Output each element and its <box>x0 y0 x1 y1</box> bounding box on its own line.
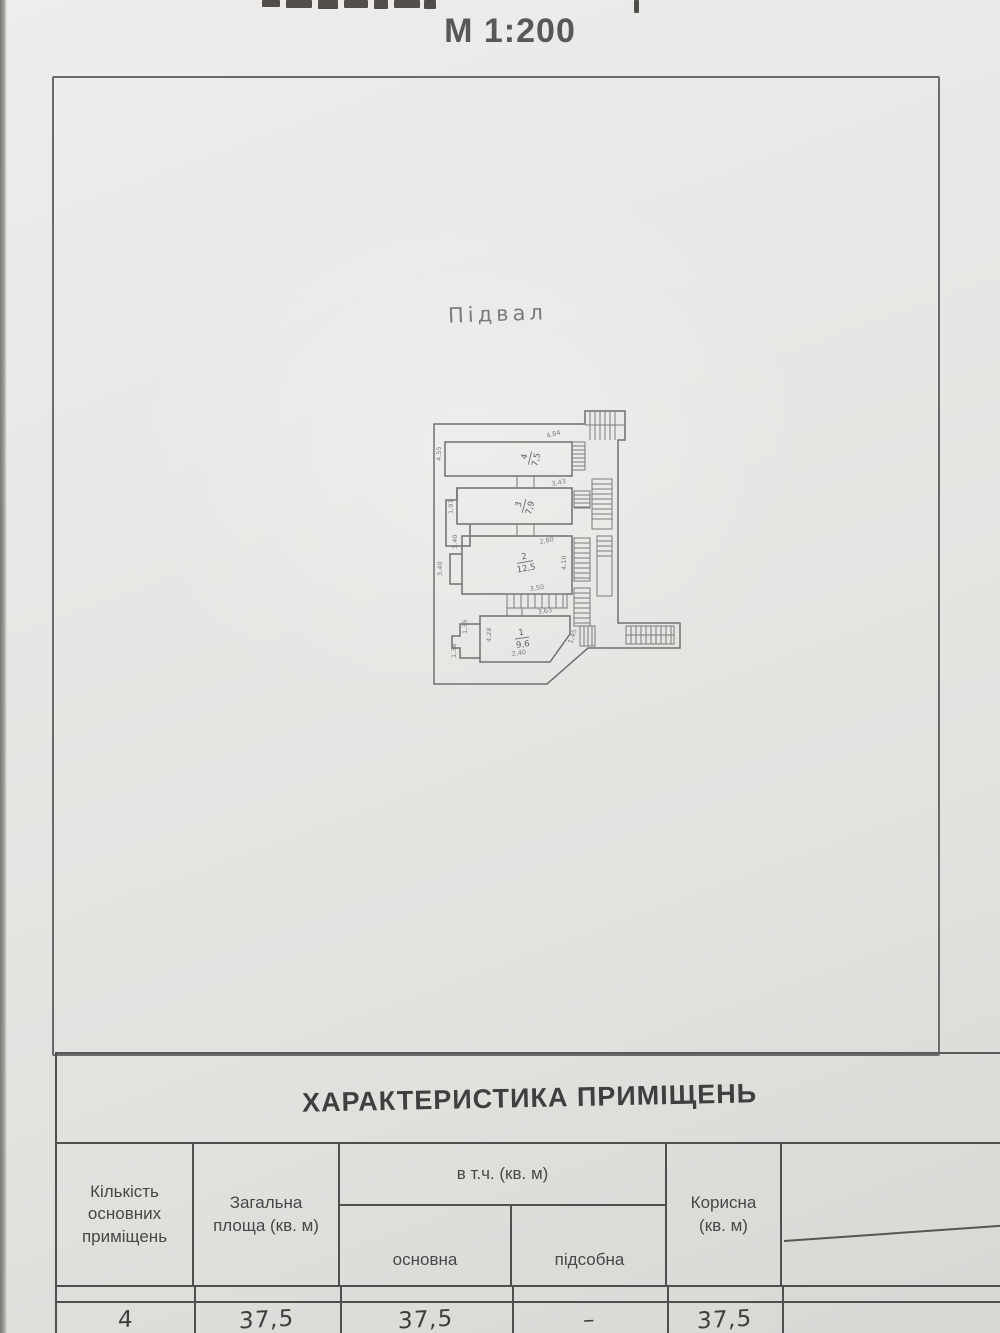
plan-dim: 4,84 <box>545 428 561 439</box>
plan-stair-run-3 <box>574 538 590 581</box>
drawing-scale-label: М 1:200 <box>370 12 650 51</box>
grid-line <box>782 1287 784 1301</box>
plan-dim: 1,40 <box>451 535 459 549</box>
plan-dim: 3,63 <box>537 606 552 616</box>
table-title-row: ХАРАКТЕРИСТИКА ПРИМІЩЕНЬ <box>57 1052 1000 1144</box>
cropped-title-fragment <box>394 0 420 8</box>
header-col-empty <box>782 1144 1000 1285</box>
header-col-total-area: Загальна площа (кв. м) <box>194 1144 340 1285</box>
cropped-title-fragment <box>262 0 280 7</box>
plan-dim: 1,45 <box>566 628 578 644</box>
header-col-count: Кількість основних приміщень <box>57 1144 194 1285</box>
plan-dim: 3,50 <box>529 583 544 593</box>
plan-dim: 1,97 <box>447 500 455 514</box>
plan-stair-run-3-steps <box>574 543 590 578</box>
svg-text:4: 4 <box>520 453 531 461</box>
plan-dim: 3,43 <box>551 477 567 488</box>
plan-dim: 4,55 <box>435 447 443 461</box>
value-total-area: 37,5 <box>239 1305 295 1333</box>
value-room-count: 4 <box>117 1306 133 1333</box>
plan-stair-run-4 <box>574 588 590 626</box>
grid-line <box>667 1287 669 1301</box>
plan-dim: 2,80 <box>539 535 555 546</box>
plan-stair-run-1-steps <box>572 446 585 466</box>
plan-outer-wall <box>434 411 680 684</box>
header-group-incl: в т.ч. (кв. м) основна підсобна <box>340 1144 667 1285</box>
header-group-subrow: основна підсобна <box>340 1206 665 1285</box>
svg-text:12,5: 12,5 <box>516 562 536 575</box>
plan-dim: 4,10 <box>560 556 568 570</box>
floor-plan-drawing: 4 7,5 3 7,9 2 12,5 1 9,6 4,55 4,84 1,97 … <box>422 396 692 706</box>
cropped-title-fragment <box>344 0 368 8</box>
grid-line <box>340 1287 342 1301</box>
header-col-useful: Корисна (кв. м) <box>667 1144 782 1285</box>
header-col-aux: підсобна <box>512 1206 667 1285</box>
plan-dim: 1,35 <box>461 620 469 634</box>
plan-dim: 1,38 <box>450 644 458 658</box>
cropped-title-fragment <box>424 0 436 9</box>
scanned-floor-plan-page: М 1:200 Підвал <box>0 0 1000 1333</box>
plan-top-stair-block-hatch <box>585 411 625 440</box>
room-4-label: 4 7,5 <box>519 449 544 468</box>
plan-room-2-notch <box>450 554 462 584</box>
plan-stair-corridor-b <box>597 536 612 596</box>
plan-stair-corridor-a-steps <box>592 484 612 519</box>
plan-dim: 4,28 <box>485 628 493 642</box>
cropped-title-fragment <box>374 0 388 9</box>
grid-line <box>782 1303 784 1333</box>
photo-edge-shadow <box>0 0 7 1333</box>
table-spacer-row <box>57 1287 1000 1303</box>
cropped-title-fragment <box>318 0 338 9</box>
grid-line <box>194 1287 196 1301</box>
header-col-main: основна <box>340 1206 512 1285</box>
room-2-label: 2 12,5 <box>514 551 536 576</box>
plan-small-hatch-lines <box>584 626 592 646</box>
value-main-area: 37,5 <box>398 1305 454 1333</box>
grid-line <box>512 1287 514 1301</box>
table-header-row: Кількість основних приміщень Загальна пл… <box>57 1144 1000 1287</box>
svg-text:7,5: 7,5 <box>530 452 543 468</box>
plan-corridor-sill-hatch <box>514 594 563 608</box>
plan-stair-run-2-steps <box>574 495 590 507</box>
plan-dim: 3,40 <box>436 562 444 576</box>
svg-text:7,9: 7,9 <box>524 500 537 516</box>
table-data-row: 4 37,5 37,5 – 37,5 <box>57 1303 1000 1333</box>
plan-dim: 2,40 <box>511 648 526 658</box>
table-title: ХАРАКТЕРИСТИКА ПРИМІЩЕНЬ <box>302 1078 758 1119</box>
room-3-label: 3 7,9 <box>512 497 537 517</box>
svg-text:2: 2 <box>521 552 528 563</box>
value-useful-area: 37,5 <box>697 1305 753 1333</box>
room-1-label: 1 9,6 <box>514 627 531 651</box>
cropped-title-fragment <box>286 0 312 8</box>
plan-stair-run-4-steps <box>574 593 590 623</box>
header-group-incl-label: в т.ч. (кв. м) <box>340 1144 665 1206</box>
characteristics-table: ХАРАКТЕРИСТИКА ПРИМІЩЕНЬ Кількість основ… <box>55 1052 1000 1333</box>
plan-room-4 <box>445 442 572 476</box>
plan-corridor-sill <box>507 594 567 608</box>
value-aux-area: – <box>583 1306 596 1333</box>
svg-text:1: 1 <box>518 628 525 639</box>
floor-caption: Підвал <box>448 300 548 327</box>
plan-stair-corridor-b-steps <box>597 541 612 556</box>
plan-wing-stairs-steps <box>626 626 674 644</box>
